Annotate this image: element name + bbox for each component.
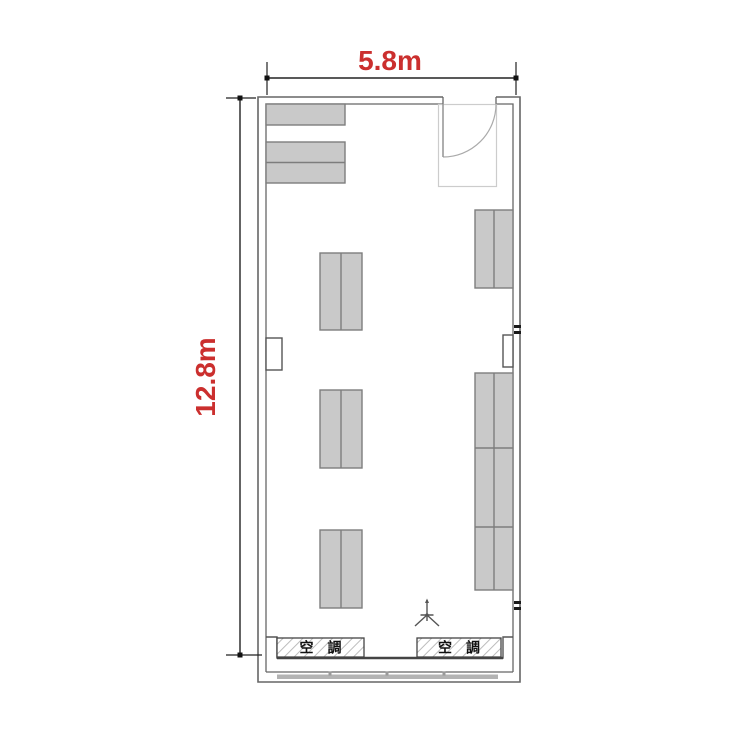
dimension-endpoint [514, 76, 519, 81]
dimension-endpoint [238, 653, 243, 658]
height-dimension-label: 12.8m [190, 337, 221, 416]
outlet-mark [514, 331, 521, 334]
desk [266, 104, 345, 125]
window-mullion-tick [443, 672, 446, 676]
wall-column [266, 338, 282, 370]
outlet-mark [514, 607, 521, 610]
ac-unit-left: 空 調 [277, 638, 364, 657]
floor-plan-page: 空 調 空 調 5.8m 12.8m [0, 0, 750, 750]
window-mullion-tick [386, 672, 389, 676]
floor-plan-canvas: 空 調 空 調 5.8m 12.8m [0, 0, 750, 750]
dimension-endpoint [265, 76, 270, 81]
window-mullion-tick [329, 672, 332, 676]
outlet-mark [514, 325, 521, 328]
dimension-width: 5.8m [265, 45, 519, 95]
ac-unit-label: 空 調 [438, 640, 480, 656]
dimension-height: 12.8m [190, 96, 262, 658]
width-dimension-label: 5.8m [358, 45, 422, 76]
outlet-mark [514, 601, 521, 604]
wall-column [503, 335, 513, 367]
dimension-endpoint [238, 96, 243, 101]
ac-unit-right: 空 調 [417, 638, 501, 657]
ac-unit-label: 空 調 [300, 640, 342, 656]
